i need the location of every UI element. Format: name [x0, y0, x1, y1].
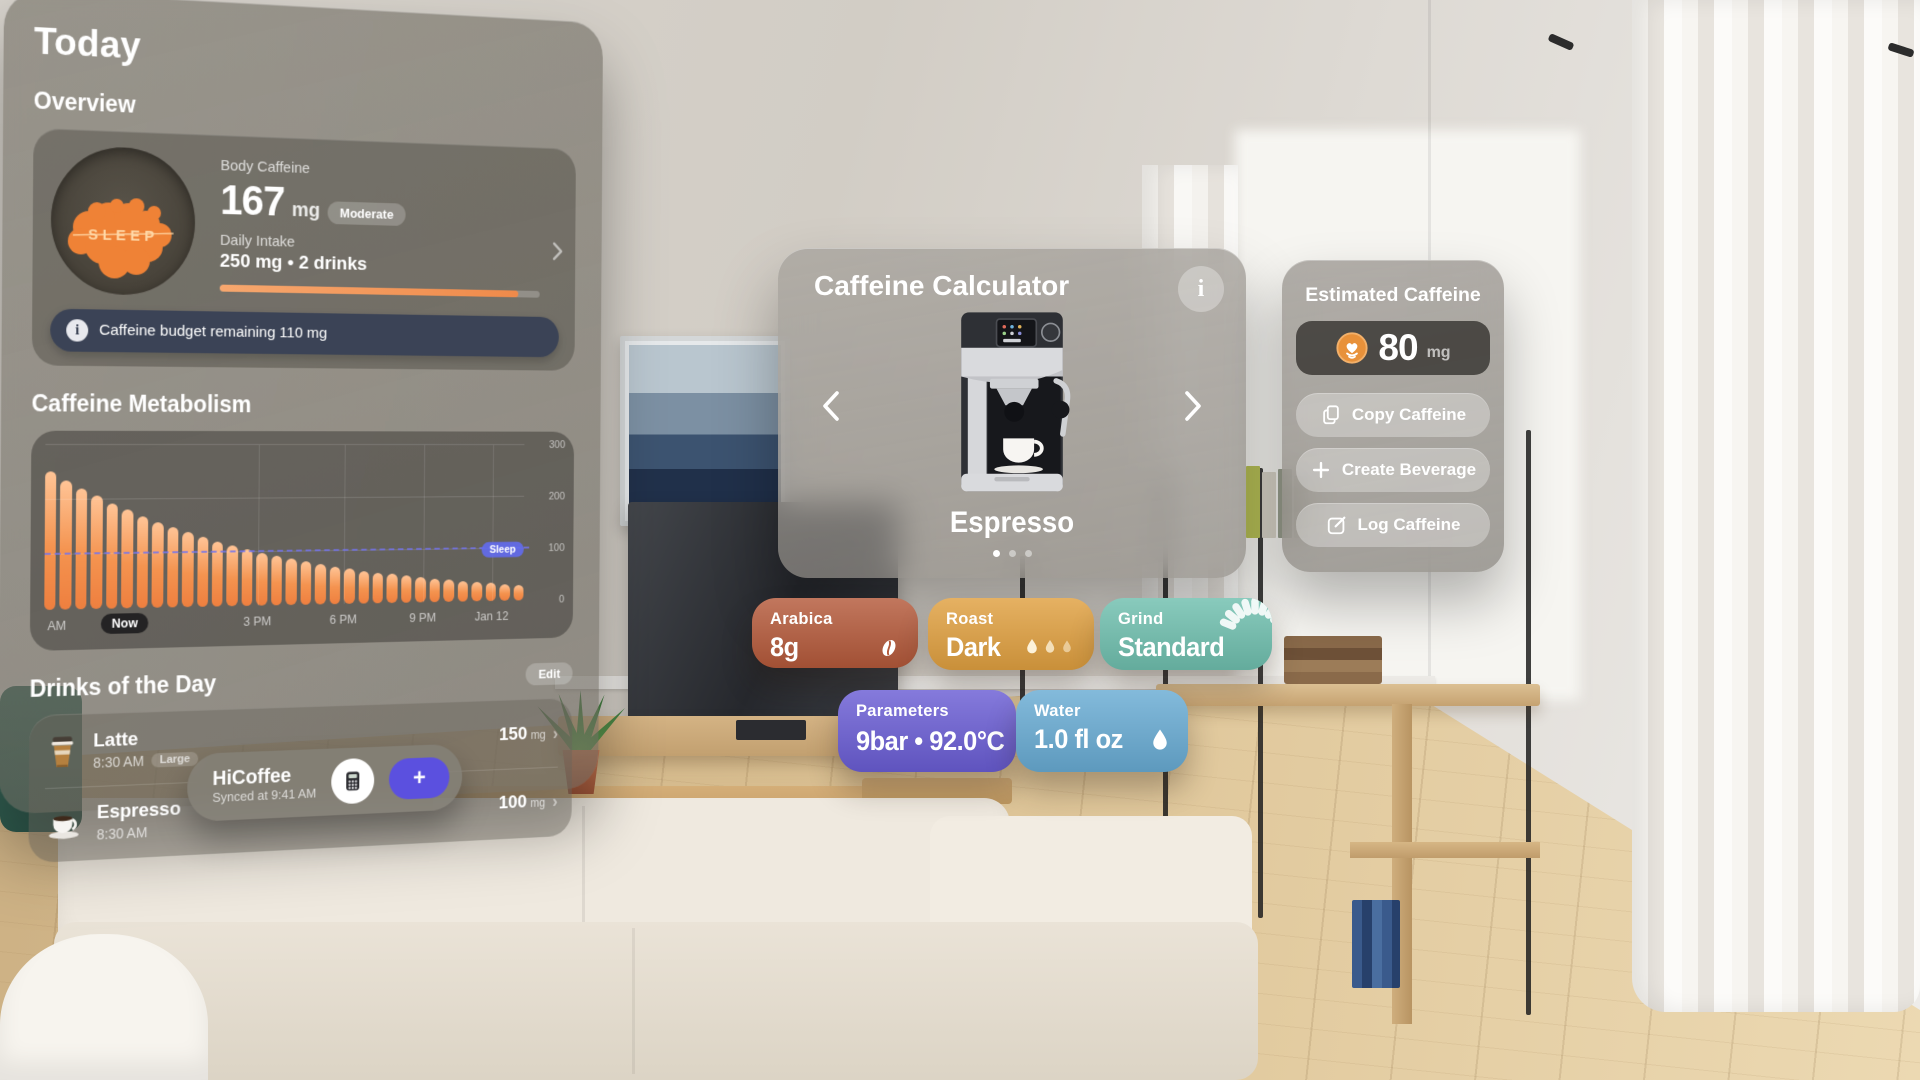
book-stack [1284, 636, 1382, 684]
chip-value: 8g [770, 632, 799, 663]
metabolism-bar [106, 503, 118, 608]
espresso-machine-illustration [945, 308, 1079, 498]
drink-amount-value: 150 [499, 724, 527, 746]
chart-x-tick: 6 PM [330, 612, 357, 626]
av-device [736, 720, 806, 740]
estimate-value-pill: 80 mg [1296, 321, 1490, 375]
metabolism-bar [358, 571, 369, 604]
metabolism-bar [271, 556, 282, 606]
carousel-next-button[interactable] [1176, 386, 1210, 426]
coffee-bean-icon [878, 637, 900, 659]
drink-time: 8:30 AM [93, 753, 144, 771]
daily-intake-progressbar [220, 284, 540, 297]
today-panel: Today Overview [0, 0, 603, 815]
chip-value-row: Standard [1118, 632, 1254, 663]
chart-x-tick: AM [47, 619, 66, 634]
drinks-heading: Drinks of the Day [30, 670, 217, 703]
roast-level-icon [1024, 638, 1076, 658]
plus-icon [1310, 459, 1332, 481]
chart-y-tick: 200 [549, 491, 565, 503]
latte-art-icon [1335, 331, 1369, 365]
latte-cup-icon [45, 732, 79, 772]
caffeine-budget-banner: i Caffeine budget remaining 110 mg [50, 309, 559, 358]
chart-x-tick: 9 PM [409, 611, 436, 625]
water-drop-icon [1150, 728, 1170, 752]
metabolism-bar [458, 581, 469, 602]
carousel-prev-button[interactable] [814, 386, 848, 426]
chart-plot-area: Sleep [44, 445, 524, 610]
chip-value-row: Dark [946, 632, 1076, 663]
info-icon: i [66, 319, 88, 342]
create-beverage-button[interactable]: Create Beverage [1296, 448, 1490, 492]
compose-icon [1326, 514, 1348, 536]
shelf-board [1156, 684, 1540, 706]
drink-amount: 150mg› [499, 723, 558, 746]
overview-card[interactable]: SLEEP Body Caffeine 167 mg Moderate Dail… [32, 128, 576, 371]
chip-arabica[interactable]: Arabica8g [752, 598, 918, 668]
chart-y-tick: 300 [549, 439, 565, 450]
sofa-seat [54, 922, 1258, 1080]
carousel-item-label: Espresso [797, 506, 1228, 540]
metabolism-bar [513, 585, 523, 601]
now-badge[interactable]: Now [101, 613, 149, 634]
drink-time: 8:30 AM [97, 824, 148, 843]
books [1352, 900, 1400, 988]
chip-value-row: 8g [770, 632, 900, 663]
chip-value: Dark [946, 632, 1001, 663]
shelf-board-low [1350, 842, 1540, 858]
metabolism-bar [136, 516, 148, 608]
copy-icon [1320, 403, 1342, 427]
body-caffeine-visualization: SLEEP [50, 145, 195, 296]
carousel-dot[interactable] [993, 550, 1000, 557]
calculator-button[interactable] [331, 758, 374, 805]
body-caffeine-unit: mg [292, 199, 320, 223]
metabolism-bar [152, 522, 164, 608]
chevron-right-icon[interactable] [552, 242, 563, 261]
carousel-dot[interactable] [1025, 550, 1032, 557]
chip-label: Roast [946, 610, 1076, 629]
metabolism-bar [121, 510, 133, 609]
button-label: Copy Caffeine [1352, 405, 1466, 425]
app-bar: HiCoffee Synced at 9:41 AM + [187, 744, 462, 823]
info-button[interactable]: i [1178, 266, 1224, 312]
caffeine-calculator-panel: Caffeine Calculator i [778, 248, 1246, 578]
estimated-caffeine-panel: Estimated Caffeine 80 mg Copy CaffeineCr… [1282, 260, 1504, 572]
budget-note: Caffeine budget remaining 110 mg [99, 322, 327, 343]
metabolism-bar [286, 559, 297, 606]
metabolism-bar [499, 584, 509, 601]
chevron-right-icon: › [553, 723, 558, 743]
chip-grind[interactable]: GrindStandard [1100, 598, 1272, 670]
chip-value: Standard [1118, 632, 1224, 663]
chart-x-tick: Jan 12 [475, 609, 509, 623]
espresso-cup-icon [45, 807, 83, 841]
carousel-page-dots[interactable] [778, 550, 1246, 557]
metabolism-bar [344, 568, 355, 604]
body-caffeine-value: 167 [220, 176, 284, 226]
metabolism-bar [415, 577, 426, 602]
metabolism-bar [485, 583, 495, 601]
caffeine-metabolism-chart[interactable]: Sleep 3002001000 AMNow3 PM6 PM9 PMJan 12 [30, 431, 574, 651]
chip-label: Arabica [770, 610, 900, 629]
chip-label: Grind [1118, 610, 1254, 629]
chevron-right-icon: › [552, 791, 557, 811]
chip-label: Water [1034, 702, 1170, 721]
page-title: Today [34, 20, 577, 88]
drink-amount-value: 100 [498, 792, 526, 814]
shelf-leg [1526, 430, 1531, 1015]
metabolism-bar [387, 574, 398, 603]
metabolism-bar [182, 532, 194, 607]
chip-label: Parameters [856, 702, 998, 721]
wall-art [620, 336, 790, 526]
calculator-icon [342, 769, 365, 793]
chart-x-tick: 3 PM [243, 614, 271, 629]
button-label: Create Beverage [1342, 460, 1476, 480]
calculator-title: Caffeine Calculator [814, 270, 1069, 302]
copy-caffeine-button[interactable]: Copy Caffeine [1296, 393, 1490, 437]
drink-size-badge: Large [152, 752, 198, 768]
metabolism-bar [300, 562, 311, 605]
chip-water[interactable]: Water1.0 fl oz [1016, 690, 1188, 772]
estimate-unit: mg [1427, 344, 1451, 362]
chart-y-axis: 3002001000 [529, 445, 565, 600]
chart-x-axis: AMNow3 PM6 PM9 PMJan 12 [44, 609, 523, 642]
drink-amount-unit: mg [531, 728, 546, 742]
metabolism-bar [241, 549, 252, 606]
metabolism-bar [373, 573, 384, 604]
metabolism-bar [329, 566, 340, 604]
sleep-label: SLEEP [88, 226, 159, 245]
metabolism-bar [315, 564, 326, 605]
chip-value: 9bar • 92.0°C [856, 726, 1004, 757]
estimate-value: 80 [1378, 327, 1417, 369]
metabolism-bar [75, 488, 87, 609]
chip-value: 1.0 fl oz [1034, 724, 1123, 755]
chart-y-tick: 0 [559, 594, 564, 606]
metabolism-bar [167, 527, 179, 607]
metabolism-bar [44, 471, 56, 610]
chip-value-row: 9bar • 92.0°C [856, 724, 998, 758]
curtain [1632, 0, 1920, 1012]
overview-heading: Overview [34, 87, 577, 136]
visionos-screen: Today Overview [0, 0, 1920, 1080]
metabolism-heading: Caffeine Metabolism [31, 390, 574, 419]
chip-parameters[interactable]: Parameters9bar • 92.0°C [838, 690, 1016, 772]
chip-value-row: 1.0 fl oz [1034, 724, 1170, 755]
metabolism-bar [401, 576, 412, 603]
metabolism-bar [197, 537, 209, 607]
chip-roast[interactable]: RoastDark [928, 598, 1094, 670]
chart-y-tick: 100 [548, 542, 564, 554]
drink-amount-unit: mg [530, 796, 545, 810]
edit-button[interactable]: Edit [526, 662, 573, 685]
carousel-dot[interactable] [1009, 550, 1016, 557]
metabolism-bar [443, 580, 454, 602]
chart-gridline [45, 444, 524, 445]
button-label: Log Caffeine [1358, 515, 1461, 535]
caffeine-level-badge: Moderate [328, 201, 406, 226]
estimate-title: Estimated Caffeine [1296, 284, 1490, 307]
metabolism-bar [471, 582, 481, 601]
sleep-threshold-badge: Sleep [481, 542, 524, 558]
sync-status: Synced at 9:41 AM [212, 786, 316, 805]
today-window: Today Overview [0, 0, 619, 883]
drink-amount: 100mg› [498, 790, 557, 814]
metabolism-bar [429, 578, 440, 602]
metabolism-bar [227, 545, 238, 606]
log-caffeine-button[interactable]: Log Caffeine [1296, 503, 1490, 547]
add-drink-button[interactable]: + [389, 757, 450, 800]
